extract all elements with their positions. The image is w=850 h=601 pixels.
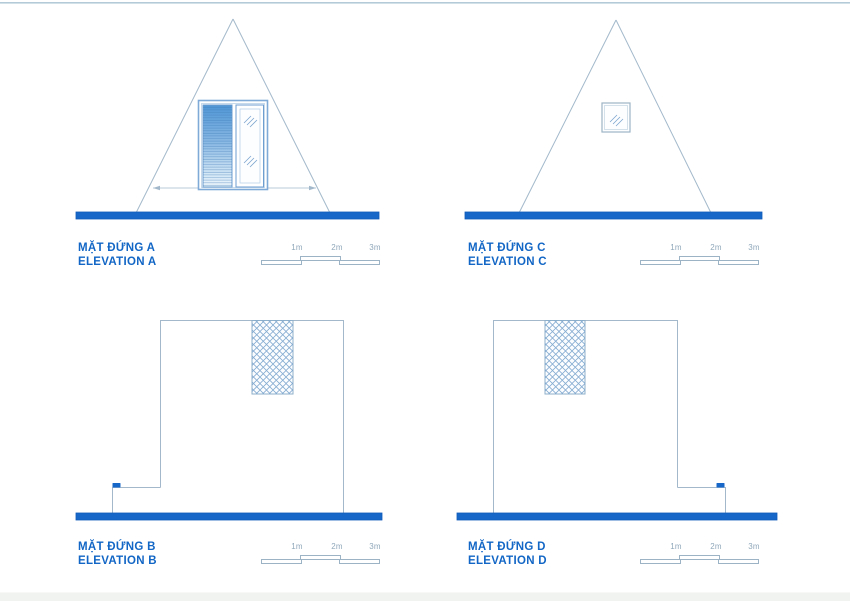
scale-bar-segments	[261, 555, 380, 565]
lattice-vent	[545, 321, 585, 395]
scale-bar-segments	[640, 555, 759, 565]
elevation-b-title: MẶT ĐỨNG B ELEVATION B	[78, 540, 157, 568]
door-louver-panel	[203, 105, 232, 187]
scale-label-1m: 1m	[291, 542, 303, 551]
elevation-a-drawing	[76, 19, 379, 219]
entry-step-outline	[678, 488, 726, 514]
drawing-linework	[0, 0, 850, 601]
scale-label-2m: 2m	[710, 243, 722, 252]
scale-bar-a: 1m 2m 3m	[261, 243, 379, 267]
ground-line	[76, 513, 382, 520]
scale-segment-1	[261, 260, 302, 265]
elevation-sheet: MẶT ĐỨNG A ELEVATION A MẶT ĐỨNG C ELEVAT…	[0, 0, 850, 601]
scale-segment-2	[300, 256, 341, 261]
scale-segment-1	[640, 260, 681, 265]
scale-label-2m: 2m	[710, 542, 722, 551]
elevation-d-drawing	[457, 321, 777, 521]
elevation-d-title: MẶT ĐỨNG D ELEVATION D	[468, 540, 547, 568]
dimension-arrow-left-icon	[153, 186, 160, 190]
scale-segment-3	[718, 559, 759, 564]
sheet-top-border	[0, 2, 850, 4]
entry-step-outline	[113, 488, 161, 514]
scale-label-2m: 2m	[331, 542, 343, 551]
elevation-b-drawing	[76, 321, 382, 521]
scale-label-3m: 3m	[369, 243, 381, 252]
scale-bar-c: 1m 2m 3m	[640, 243, 758, 267]
lattice-vent	[252, 321, 293, 395]
step-handle-mark	[113, 483, 121, 488]
title-vietnamese: MẶT ĐỨNG A	[78, 241, 156, 255]
scale-segment-1	[261, 559, 302, 564]
title-english: ELEVATION A	[78, 255, 156, 269]
scale-label-2m: 2m	[331, 243, 343, 252]
title-vietnamese: MẶT ĐỨNG B	[78, 540, 157, 554]
ground-line	[76, 212, 379, 219]
scale-label-1m: 1m	[670, 243, 682, 252]
scale-bar-d: 1m 2m 3m	[640, 542, 758, 566]
title-english: ELEVATION D	[468, 554, 547, 568]
scale-segment-1	[640, 559, 681, 564]
scale-segment-3	[339, 559, 380, 564]
dimension-arrow-right-icon	[309, 186, 316, 190]
scale-bar-segments	[261, 256, 380, 266]
title-english: ELEVATION C	[468, 255, 547, 269]
scale-segment-3	[718, 260, 759, 265]
scale-segment-3	[339, 260, 380, 265]
scale-label-3m: 3m	[748, 243, 760, 252]
title-english: ELEVATION B	[78, 554, 157, 568]
scale-label-1m: 1m	[670, 542, 682, 551]
scale-label-1m: 1m	[291, 243, 303, 252]
door-glass-panel	[236, 105, 264, 187]
elevation-c-drawing	[465, 20, 762, 219]
elevation-a-title: MẶT ĐỨNG A ELEVATION A	[78, 241, 156, 269]
window	[602, 103, 630, 132]
sheet-bottom-strip	[0, 593, 850, 601]
title-vietnamese: MẶT ĐỨNG C	[468, 241, 547, 255]
scale-segment-2	[300, 555, 341, 560]
ground-line	[465, 212, 762, 219]
ground-line	[457, 513, 777, 520]
scale-label-3m: 3m	[369, 542, 381, 551]
scale-segment-2	[679, 555, 720, 560]
scale-segment-2	[679, 256, 720, 261]
title-vietnamese: MẶT ĐỨNG D	[468, 540, 547, 554]
elevation-c-title: MẶT ĐỨNG C ELEVATION C	[468, 241, 547, 269]
scale-label-3m: 3m	[748, 542, 760, 551]
scale-bar-b: 1m 2m 3m	[261, 542, 379, 566]
scale-bar-segments	[640, 256, 759, 266]
step-handle-mark	[717, 483, 725, 488]
